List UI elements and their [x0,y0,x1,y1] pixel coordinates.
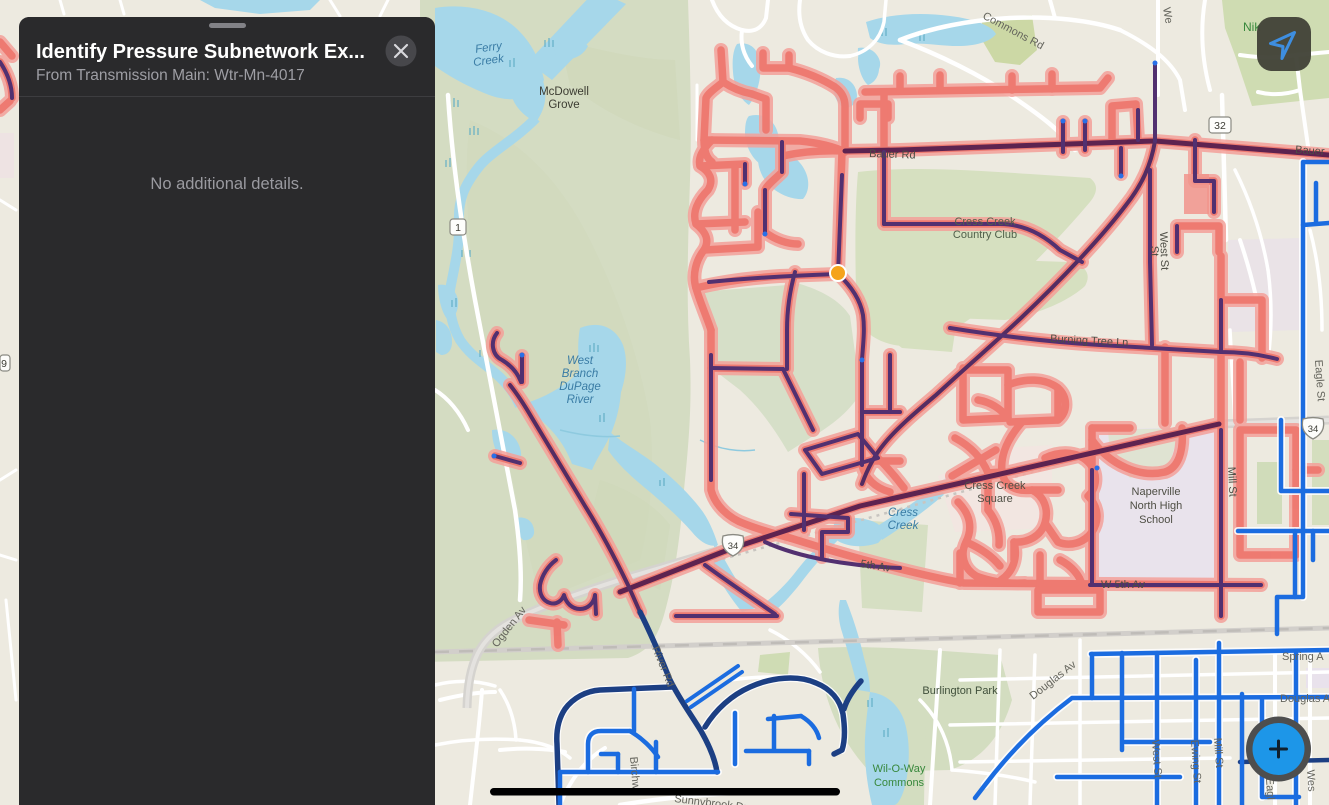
svg-text:34: 34 [1308,424,1319,435]
svg-text:Square: Square [977,493,1012,505]
svg-text:Wil-O-Way: Wil-O-Way [873,763,926,775]
svg-text:W 5th Av: W 5th Av [1101,579,1145,591]
svg-text:Cress Creek: Cress Creek [964,480,1026,492]
svg-text:North High: North High [1130,500,1183,512]
svg-text:Creek: Creek [888,520,920,532]
svg-text:Cress Creek: Cress Creek [954,216,1016,228]
svg-text:34: 34 [728,541,739,552]
svg-text:River: River [567,394,595,406]
svg-text:No additional details.: No additional details. [150,175,303,193]
svg-text:Bauer: Bauer [1295,144,1325,158]
svg-text:Douglas A: Douglas A [1280,693,1329,705]
svg-text:Mill St: Mill St [1225,467,1239,498]
svg-text:West: West [567,355,594,367]
svg-text:Branch: Branch [562,368,598,380]
svg-text:DuPage: DuPage [559,381,601,393]
svg-text:Bauer Rd: Bauer Rd [869,148,916,162]
svg-text:Burlington Park: Burlington Park [922,685,998,697]
svg-text:1: 1 [455,222,461,234]
svg-text:Country Club: Country Club [953,229,1017,241]
svg-text:Spring A: Spring A [1282,651,1324,663]
svg-text:9: 9 [1,358,7,370]
svg-text:Wes: Wes [1304,769,1318,792]
svg-text:32: 32 [1214,120,1226,132]
svg-text:Grove: Grove [548,99,579,111]
svg-text:From Transmission Main: Wtr-Mn: From Transmission Main: Wtr-Mn-4017 [36,67,305,84]
svg-text:Naperville: Naperville [1132,486,1181,498]
svg-text:Identify Pressure Subnetwork E: Identify Pressure Subnetwork Ex... [36,41,365,63]
svg-text:School: School [1139,514,1173,526]
svg-text:Cress: Cress [888,507,918,519]
svg-text:St: St [1148,246,1160,257]
svg-text:Commons: Commons [874,777,925,789]
svg-text:McDowell: McDowell [539,86,589,98]
svg-text:Mill St: Mill St [1211,737,1225,768]
